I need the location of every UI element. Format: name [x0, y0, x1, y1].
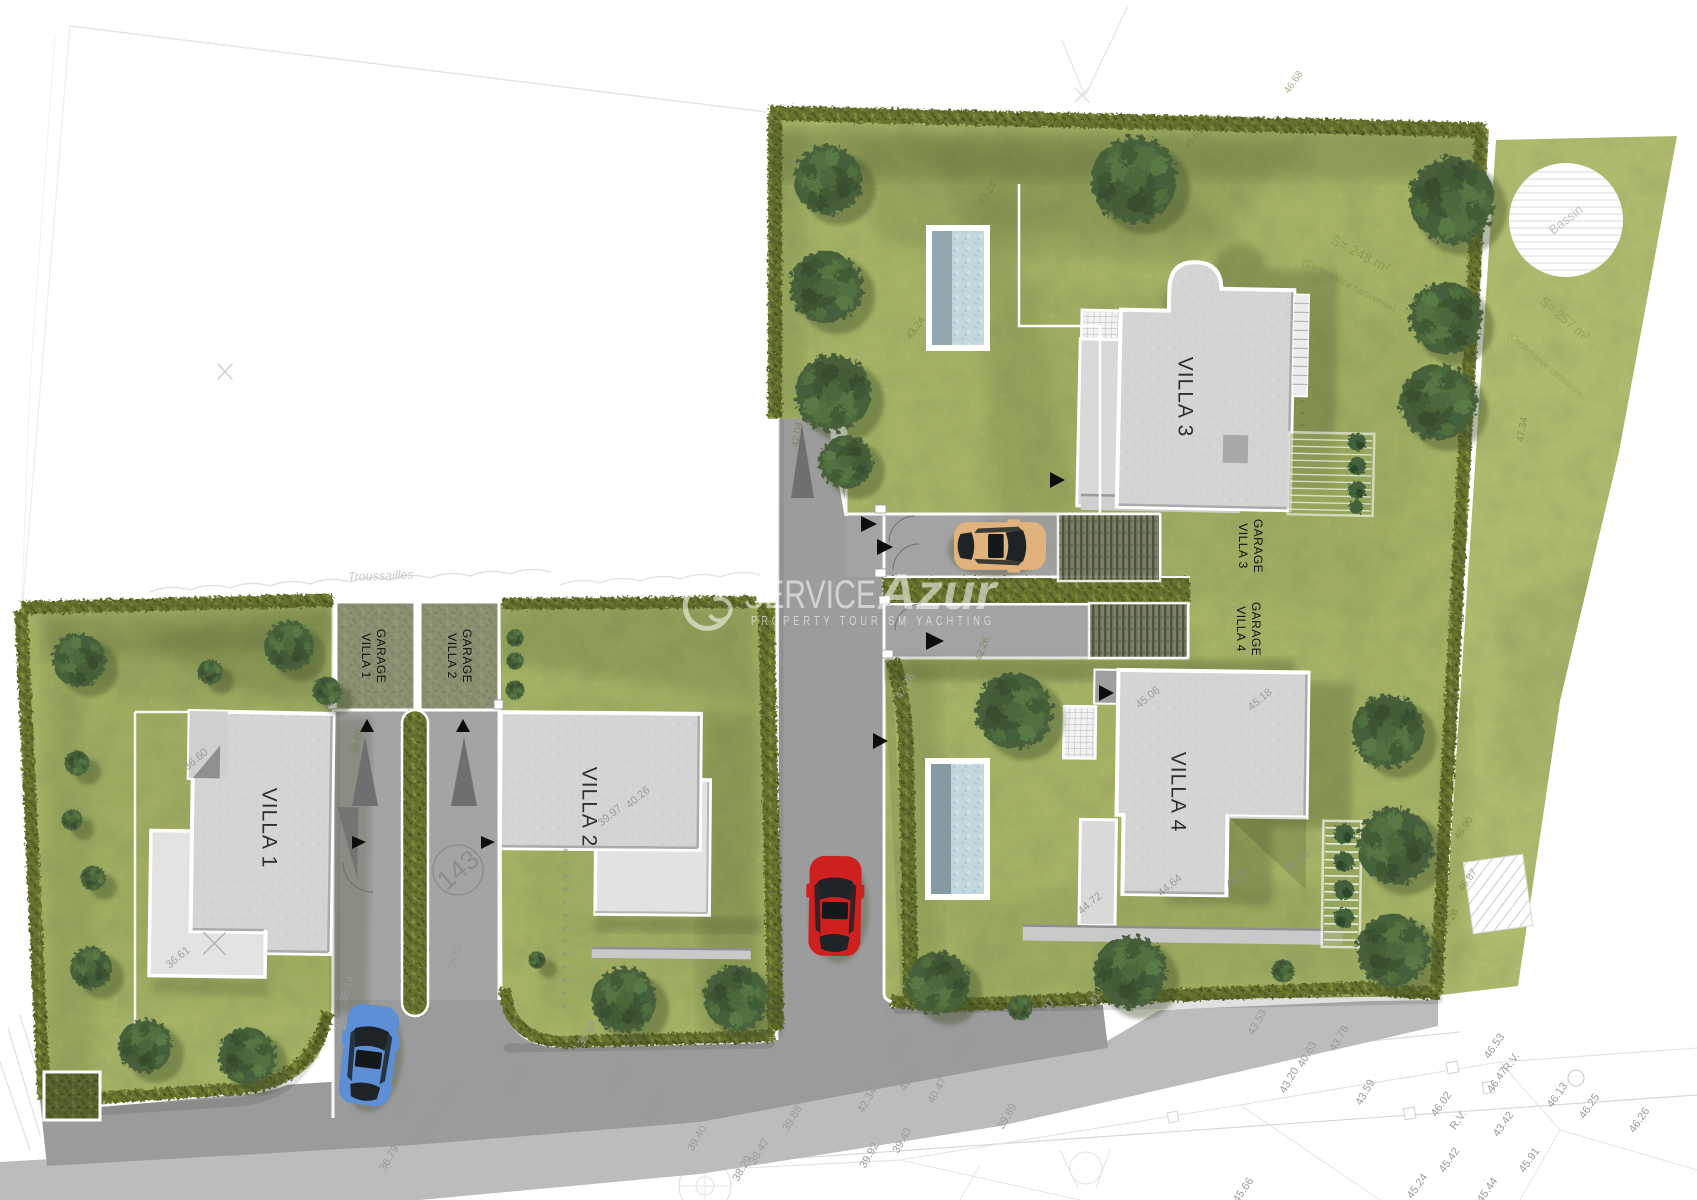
svg-text:VILLA 4: VILLA 4 [1234, 606, 1248, 652]
svg-text:VILLA 4: VILLA 4 [1167, 752, 1190, 833]
svg-text:GARAGE: GARAGE [374, 629, 388, 683]
svg-text:VILLA 2: VILLA 2 [445, 633, 459, 679]
svg-text:PROPERTY TOURISM YACHTING: PROPERTY TOURISM YACHTING [751, 614, 995, 628]
svg-text:GARAGE: GARAGE [460, 629, 474, 683]
svg-text:GARAGE: GARAGE [1249, 602, 1263, 656]
svg-text:VILLA 1: VILLA 1 [258, 788, 281, 869]
svg-text:GARAGE: GARAGE [1251, 519, 1265, 573]
svg-text:Azur: Azur [876, 564, 999, 620]
svg-text:Troussailles: Troussailles [348, 568, 414, 584]
svg-text:VILLA 3: VILLA 3 [1174, 357, 1197, 438]
svg-text:VILLA 2: VILLA 2 [578, 767, 601, 848]
svg-text:VILLA 1: VILLA 1 [359, 633, 373, 679]
svg-text:SERVICE: SERVICE [744, 573, 876, 617]
svg-text:VILLA 3: VILLA 3 [1236, 523, 1250, 569]
